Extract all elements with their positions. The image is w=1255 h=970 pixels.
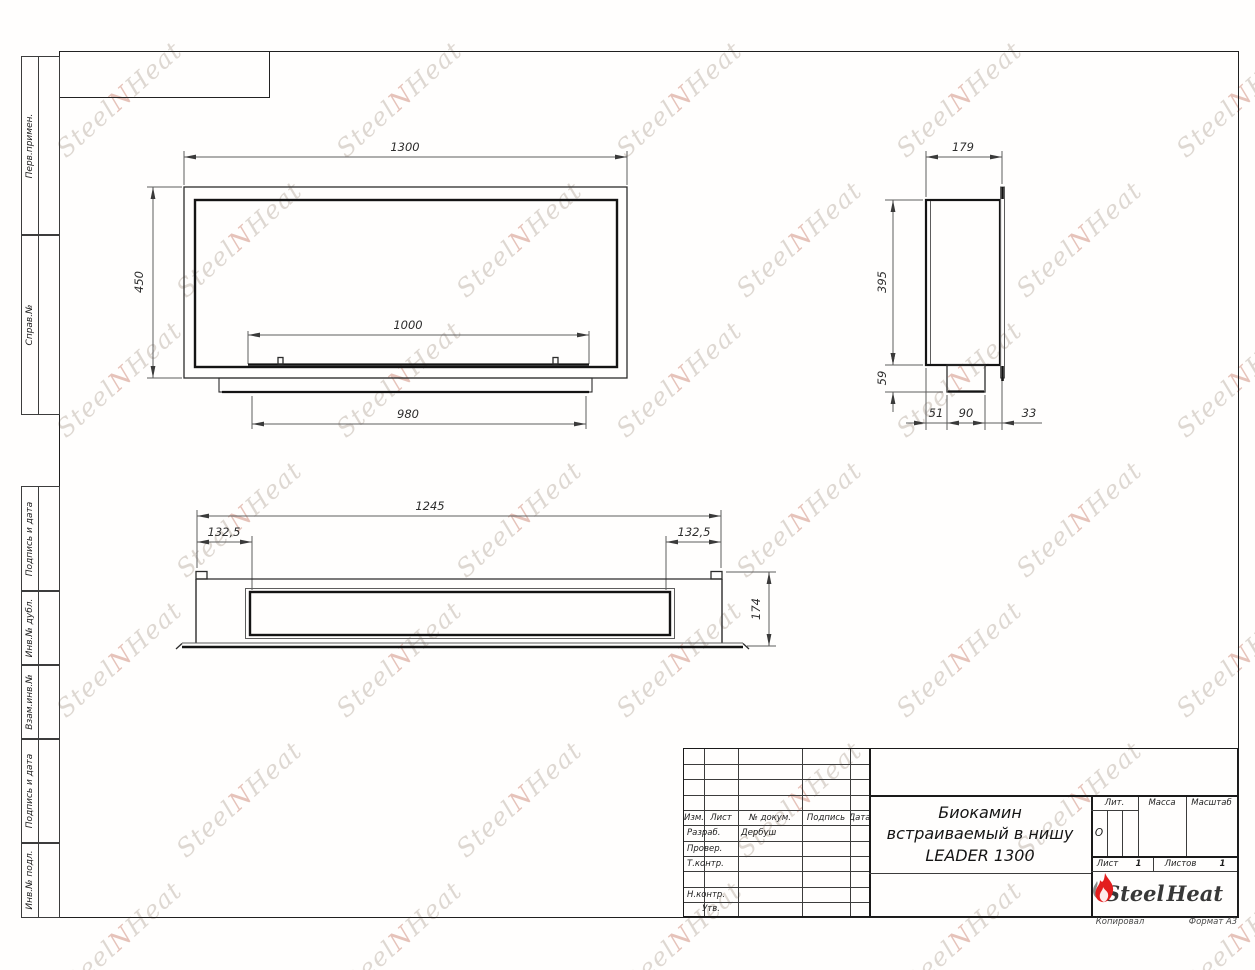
tb-line — [869, 873, 1091, 874]
bottom-opening — [250, 592, 670, 635]
title-line2: встраиваемый в нишу — [887, 823, 1074, 844]
title-block: Изм. Лист № докум. Подпись Дата Разраб. … — [683, 748, 1238, 917]
divider-line — [38, 57, 39, 235]
tb-col-list: Лист — [704, 810, 738, 825]
margin-label: Подпись и дата — [25, 502, 35, 577]
margin-box-perv-primen: Перв.примен. — [21, 56, 60, 236]
tb-role: Утв. — [684, 902, 738, 916]
tb-col-sign: Подпись — [802, 810, 850, 825]
tb-line — [684, 779, 869, 780]
tb-role: Т.контр. — [684, 856, 741, 871]
company-logo: Steel Heat — [1091, 871, 1237, 916]
top-left-designation-box — [59, 51, 270, 98]
product-title: Биокамин встраиваемый в нишу LEADER 1300 — [869, 795, 1091, 873]
bottom-view: 1245 132,5 132,5 174 — [176, 499, 776, 649]
margin-box-vzam-inv: Взам.инв.№ — [21, 664, 60, 740]
tb-line — [684, 871, 869, 872]
divider-line — [38, 843, 39, 917]
dim-side-seg2: 90 — [959, 406, 974, 420]
margin-box-sprav-no: Справ.№ — [21, 234, 60, 415]
margin-label: Перв.примен. — [25, 114, 35, 179]
margin-label: Подпись и дата — [25, 754, 35, 829]
divider-line — [38, 487, 39, 591]
tb-name: Дербуш — [738, 825, 805, 841]
side-bottom-box — [947, 365, 985, 392]
copied-label: Копировал — [1080, 917, 1160, 927]
glass-clip-left — [278, 358, 283, 365]
tb-role: Н.контр. — [684, 887, 741, 902]
tb-sheet-value: 1 — [1124, 856, 1153, 871]
divider-line — [38, 235, 39, 414]
margin-label: Справ.№ — [25, 304, 35, 345]
tb-role: Разраб. — [684, 825, 741, 841]
front-view: 1300 450 1000 980 — [132, 140, 627, 429]
tb-line — [1107, 810, 1108, 856]
title-line1: Биокамин — [938, 802, 1022, 823]
dim-front-height: 450 — [132, 271, 146, 293]
divider-line — [38, 591, 39, 665]
side-body — [926, 200, 1000, 365]
side-view: 179 395 59 51 90 33 — [875, 140, 1042, 430]
flange-end-left — [176, 644, 182, 650]
drawing-sheet: SteelNHeatSteelNHeatSteelNHeatSteelNHeat… — [0, 0, 1255, 970]
tb-sheets-label: Листов — [1153, 856, 1208, 871]
tb-line — [1122, 810, 1123, 856]
margin-box-podpis-data-1: Подпись и дата — [21, 486, 60, 592]
tb-role: Провер. — [684, 841, 741, 856]
dim-side-seg3: 33 — [1022, 406, 1037, 420]
tb-sheet-label: Лист — [1091, 856, 1124, 871]
dim-bottom-offset-left: 132,5 — [208, 525, 241, 539]
tb-lit-value: О — [1091, 810, 1107, 856]
margin-box-inv-dubl: Инв.№ дубл. — [21, 590, 60, 666]
title-line3: LEADER 1300 — [925, 845, 1034, 866]
bottom-opening-outer — [246, 589, 675, 639]
margin-label: Взам.инв.№ — [25, 674, 35, 729]
margin-label: Инв.№ дубл. — [25, 599, 35, 658]
dim-side-bottom: 59 — [875, 371, 889, 386]
tb-sheets-value: 1 — [1208, 856, 1237, 871]
logo-heat: Heat — [1167, 881, 1224, 906]
tb-col-izm: Изм. — [684, 810, 704, 825]
glass-clip-right — [553, 358, 558, 365]
bottom-tab-right — [711, 572, 722, 580]
dim-front-tray: 980 — [397, 407, 419, 421]
front-outer-body — [184, 187, 627, 378]
flame-icon — [1091, 871, 1117, 905]
dim-side-depth: 179 — [952, 140, 974, 154]
dim-bottom-offset-right: 132,5 — [678, 525, 711, 539]
tb-line — [850, 749, 851, 916]
margin-label: Инв.№ подл. — [25, 850, 35, 909]
dim-front-opening: 1000 — [393, 318, 422, 332]
dim-bottom-width: 1245 — [415, 499, 444, 513]
dim-bottom-height: 174 — [749, 598, 763, 620]
tb-line — [684, 764, 869, 765]
format-label: Формат А3 — [1178, 917, 1248, 927]
tb-col-doc: № докум. — [738, 810, 802, 825]
margin-box-podpis-data-2: Подпись и дата — [21, 738, 60, 844]
divider-line — [38, 665, 39, 739]
tb-scale-label: Масштаб — [1186, 795, 1237, 810]
margin-box-inv-podl: Инв.№ подл. — [21, 842, 60, 918]
bottom-tab-left — [196, 572, 207, 580]
front-tray — [219, 378, 592, 392]
front-inner-niche — [195, 200, 617, 367]
dim-side-seg1: 51 — [929, 406, 944, 420]
dim-front-width: 1300 — [390, 140, 419, 154]
dim-side-height: 395 — [875, 271, 889, 293]
tb-lit-label: Лит. — [1091, 795, 1138, 810]
divider-line — [38, 739, 39, 843]
tb-col-date: Дата — [850, 810, 869, 825]
tb-line — [684, 795, 869, 796]
tb-mass-label: Масса — [1138, 795, 1186, 810]
